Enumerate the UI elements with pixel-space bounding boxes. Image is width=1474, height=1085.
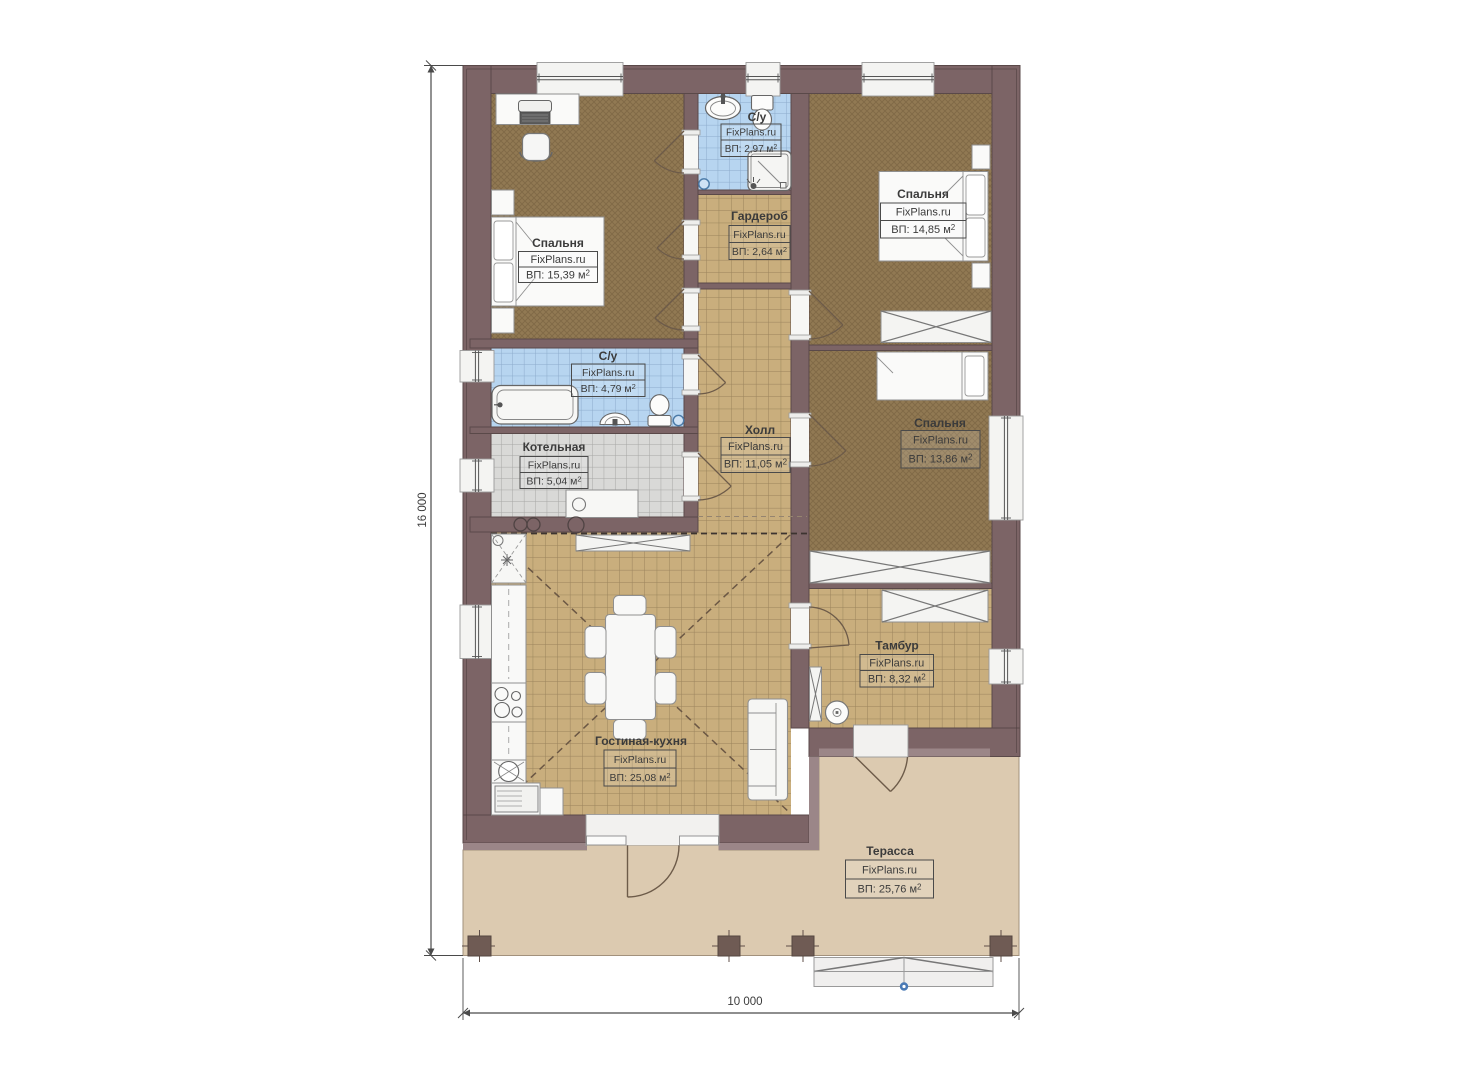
svg-text:FixPlans.ru: FixPlans.ru (869, 658, 924, 670)
svg-text:FixPlans.ru: FixPlans.ru (582, 367, 635, 379)
svg-text:ВП: 11,05 м2: ВП: 11,05 м2 (724, 458, 788, 471)
svg-text:ВП: 25,76 м2: ВП: 25,76 м2 (858, 883, 923, 896)
svg-text:Гардероб: Гардероб (731, 209, 788, 223)
svg-text:FixPlans.ru: FixPlans.ru (733, 229, 786, 241)
svg-text:FixPlans.ru: FixPlans.ru (528, 459, 581, 471)
svg-text:16 000: 16 000 (417, 492, 429, 527)
svg-text:FixPlans.ru: FixPlans.ru (726, 128, 776, 139)
svg-text:Тамбур: Тамбур (875, 639, 919, 653)
svg-text:С/у: С/у (599, 349, 618, 363)
svg-text:ВП: 8,32 м2: ВП: 8,32 м2 (868, 673, 926, 686)
svg-text:ВП: 2,64 м2: ВП: 2,64 м2 (732, 245, 787, 258)
svg-text:Терасса: Терасса (866, 844, 914, 858)
svg-text:10 000: 10 000 (727, 996, 762, 1008)
svg-text:FixPlans.ru: FixPlans.ru (896, 207, 951, 219)
svg-text:ВП: 5,04 м2: ВП: 5,04 м2 (526, 474, 581, 487)
svg-text:ВП: 25,08 м2: ВП: 25,08 м2 (610, 771, 671, 784)
svg-text:FixPlans.ru: FixPlans.ru (913, 435, 968, 447)
svg-text:ВП: 14,85 м2: ВП: 14,85 м2 (891, 223, 956, 236)
svg-text:Гостиная-кухня: Гостиная-кухня (595, 734, 687, 748)
svg-text:Спальня: Спальня (532, 236, 584, 250)
svg-text:ВП: 15,39 м2: ВП: 15,39 м2 (526, 269, 591, 282)
svg-text:FixPlans.ru: FixPlans.ru (614, 754, 667, 766)
svg-text:ВП: 4,79 м2: ВП: 4,79 м2 (581, 382, 636, 395)
svg-text:FixPlans.ru: FixPlans.ru (530, 254, 585, 266)
svg-text:ВП: 2,97 м2: ВП: 2,97 м2 (725, 144, 778, 155)
svg-text:FixPlans.ru: FixPlans.ru (862, 865, 917, 877)
svg-text:Котельная: Котельная (523, 440, 586, 454)
svg-text:С/у: С/у (748, 110, 767, 124)
svg-text:ВП: 13,86 м2: ВП: 13,86 м2 (909, 453, 974, 466)
svg-text:FixPlans.ru: FixPlans.ru (728, 441, 783, 453)
svg-text:Спальня: Спальня (914, 416, 966, 430)
svg-text:Спальня: Спальня (897, 187, 949, 201)
svg-text:Холл: Холл (745, 423, 775, 437)
